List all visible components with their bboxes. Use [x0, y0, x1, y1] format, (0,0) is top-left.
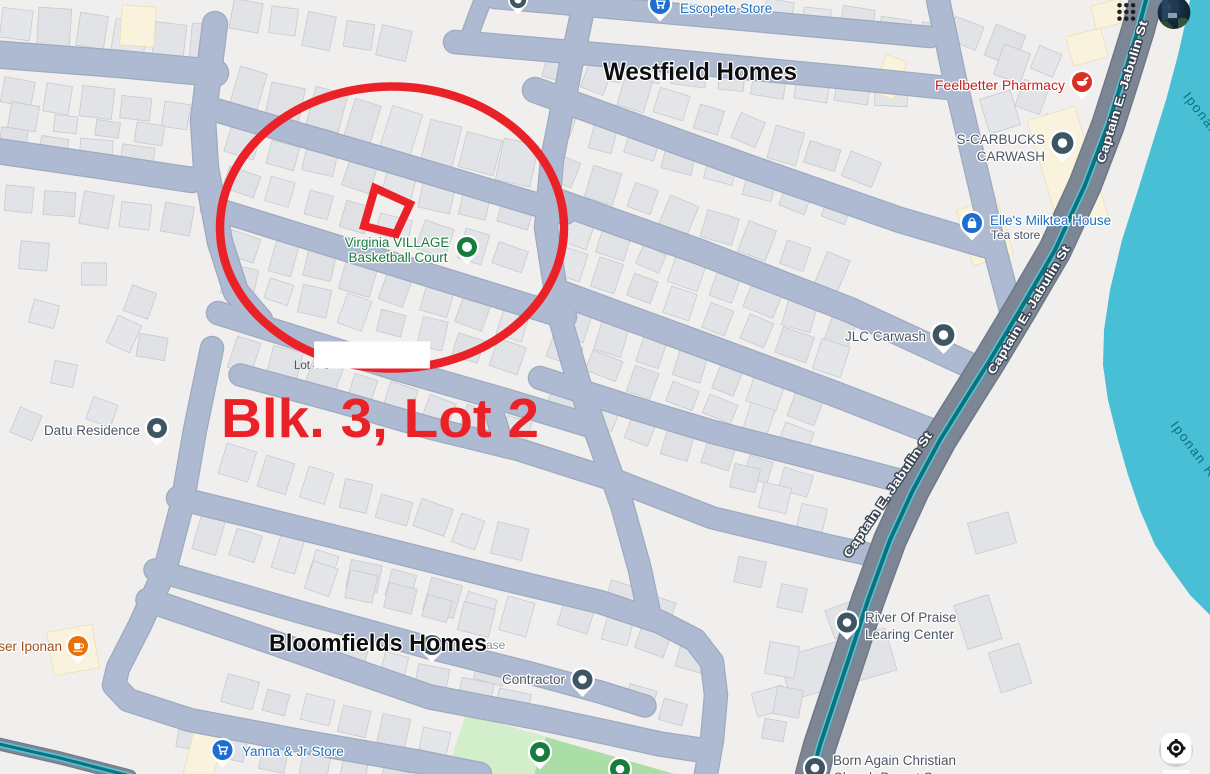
svg-text:Learing Center: Learing Center	[865, 627, 955, 642]
svg-text:CARWASH: CARWASH	[977, 149, 1045, 164]
svg-text:ser Iponan: ser Iponan	[0, 639, 62, 654]
svg-text:S-CARBUCKS: S-CARBUCKS	[956, 132, 1045, 147]
svg-text:ase: ase	[486, 638, 506, 652]
svg-text:Elle's Milktea House: Elle's Milktea House	[990, 213, 1111, 228]
svg-text:Westfield Homes: Westfield Homes	[603, 58, 797, 86]
svg-text:Escopete Store: Escopete Store	[680, 1, 772, 16]
svg-text:Contractor: Contractor	[502, 672, 566, 687]
svg-text:Feelbetter Pharmacy: Feelbetter Pharmacy	[935, 77, 1065, 93]
svg-text:Yanna & Jr Store: Yanna & Jr Store	[242, 744, 344, 759]
svg-text:Bloomfields Homes: Bloomfields Homes	[269, 630, 487, 657]
svg-text:Born Again Christian: Born Again Christian	[833, 753, 956, 768]
svg-text:JLC Carwash: JLC Carwash	[845, 329, 926, 344]
svg-text:Church Parent S: Church Parent S	[833, 770, 933, 774]
svg-text:Basketball Court: Basketball Court	[348, 250, 447, 265]
svg-text:River Of Praise: River Of Praise	[865, 610, 957, 625]
svg-text:Tea store: Tea store	[991, 228, 1041, 242]
svg-text:Blk. 3, Lot 2: Blk. 3, Lot 2	[221, 387, 539, 449]
svg-text:Datu Residence: Datu Residence	[44, 423, 140, 438]
